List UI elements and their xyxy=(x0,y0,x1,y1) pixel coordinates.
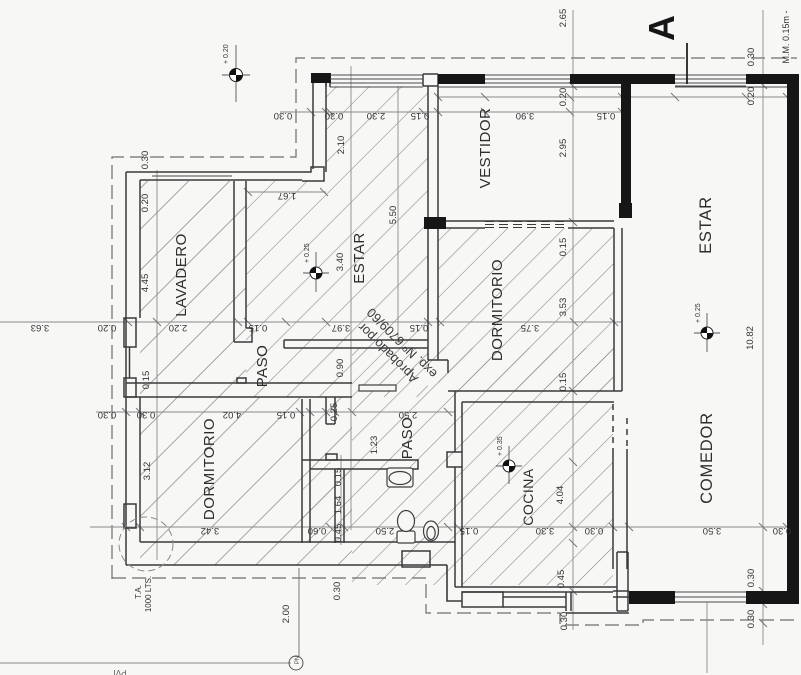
svg-text:0.45: 0.45 xyxy=(556,570,567,589)
svg-text:0.30: 0.30 xyxy=(746,569,757,588)
svg-text:+ 0.25: + 0.25 xyxy=(695,303,702,323)
svg-text:10.82: 10.82 xyxy=(745,326,756,350)
svg-text:3.40: 3.40 xyxy=(335,253,346,272)
svg-text:T.A.: T.A. xyxy=(134,585,143,599)
svg-text:2.30: 2.30 xyxy=(367,110,386,121)
svg-text:1.64: 1.64 xyxy=(333,496,344,515)
svg-text:COMEDOR: COMEDOR xyxy=(698,412,716,504)
svg-text:LAVADERO: LAVADERO xyxy=(173,233,190,316)
svg-text:COCINA: COCINA xyxy=(520,468,536,526)
svg-text:0.30: 0.30 xyxy=(98,409,117,420)
svg-text:4.02: 4.02 xyxy=(223,409,242,420)
svg-text:0.20: 0.20 xyxy=(746,87,757,106)
svg-text:3.30: 3.30 xyxy=(536,525,555,536)
svg-text:0.15: 0.15 xyxy=(277,409,296,420)
svg-text:0.30: 0.30 xyxy=(585,525,604,536)
svg-text:4.45: 4.45 xyxy=(140,274,151,293)
svg-text:1.67: 1.67 xyxy=(278,190,297,201)
svg-text:0.30: 0.30 xyxy=(773,525,792,536)
svg-text:2.65: 2.65 xyxy=(558,9,569,28)
svg-text:DORMITORIO: DORMITORIO xyxy=(201,418,218,520)
svg-text:+ 0.20: + 0.20 xyxy=(223,44,230,64)
svg-text:0.30: 0.30 xyxy=(325,110,344,121)
svg-text:5.50: 5.50 xyxy=(388,206,399,225)
svg-text:3.97: 3.97 xyxy=(332,322,351,333)
svg-text:PASO: PASO xyxy=(399,417,416,460)
svg-text:0.30: 0.30 xyxy=(746,48,757,67)
svg-text:2.50: 2.50 xyxy=(376,525,395,536)
svg-text:2.10: 2.10 xyxy=(336,136,347,155)
svg-text:A: A xyxy=(641,15,682,41)
svg-text:1000 LTS.: 1000 LTS. xyxy=(144,576,153,612)
svg-text:0.90: 0.90 xyxy=(335,359,346,378)
svg-text:3.53: 3.53 xyxy=(558,298,569,317)
svg-text:+ 0.35: + 0.35 xyxy=(497,436,504,456)
svg-text:+ 0.25: + 0.25 xyxy=(304,243,311,263)
svg-text:0.15: 0.15 xyxy=(411,110,430,121)
svg-text:0.30: 0.30 xyxy=(332,582,343,601)
svg-text:0.15: 0.15 xyxy=(410,322,429,333)
svg-text:2.95: 2.95 xyxy=(558,139,569,158)
svg-text:0.45: 0.45 xyxy=(333,524,344,543)
svg-text:0.30: 0.30 xyxy=(274,110,293,121)
svg-text:2.20: 2.20 xyxy=(169,322,188,333)
svg-text:0.15: 0.15 xyxy=(558,238,569,257)
svg-text:0.15: 0.15 xyxy=(558,373,569,392)
svg-text:VESTIDOR: VESTIDOR xyxy=(477,108,494,189)
svg-text:0.30: 0.30 xyxy=(746,610,757,629)
svg-text:0.15: 0.15 xyxy=(597,110,616,121)
svg-text:3.12: 3.12 xyxy=(142,462,153,481)
svg-text:2.00: 2.00 xyxy=(281,605,292,624)
svg-text:0.15: 0.15 xyxy=(249,322,268,333)
svg-text:PVI: PVI xyxy=(114,668,127,675)
svg-text:0.15: 0.15 xyxy=(141,371,152,390)
svg-text:PASO: PASO xyxy=(254,345,271,388)
svg-text:0.60: 0.60 xyxy=(308,525,327,536)
svg-text:DORMITORIO: DORMITORIO xyxy=(489,259,506,361)
svg-text:3.50: 3.50 xyxy=(703,525,722,536)
svg-text:0.15: 0.15 xyxy=(333,468,344,487)
svg-text:0.20: 0.20 xyxy=(98,322,117,333)
svg-text:0.20: 0.20 xyxy=(558,88,569,107)
svg-text:M.M. 0.15m -: M.M. 0.15m - xyxy=(781,10,791,63)
svg-text:0.30: 0.30 xyxy=(140,151,151,170)
svg-text:2.50: 2.50 xyxy=(399,409,418,420)
svg-text:0.20: 0.20 xyxy=(140,194,151,213)
svg-text:3.90: 3.90 xyxy=(516,110,535,121)
svg-text:ESTAR: ESTAR xyxy=(351,232,368,283)
svg-text:0.30: 0.30 xyxy=(559,612,570,631)
svg-text:3.63: 3.63 xyxy=(31,322,50,333)
svg-text:PN: PN xyxy=(295,656,301,664)
svg-text:3.75: 3.75 xyxy=(521,322,540,333)
svg-text:4.04: 4.04 xyxy=(555,486,566,505)
svg-text:0.15: 0.15 xyxy=(460,525,479,536)
svg-text:0.25: 0.25 xyxy=(329,403,340,422)
svg-text:0.30: 0.30 xyxy=(137,409,156,420)
svg-text:ESTAR: ESTAR xyxy=(697,196,715,254)
svg-text:1.23: 1.23 xyxy=(369,436,380,455)
svg-text:3.42: 3.42 xyxy=(201,525,220,536)
